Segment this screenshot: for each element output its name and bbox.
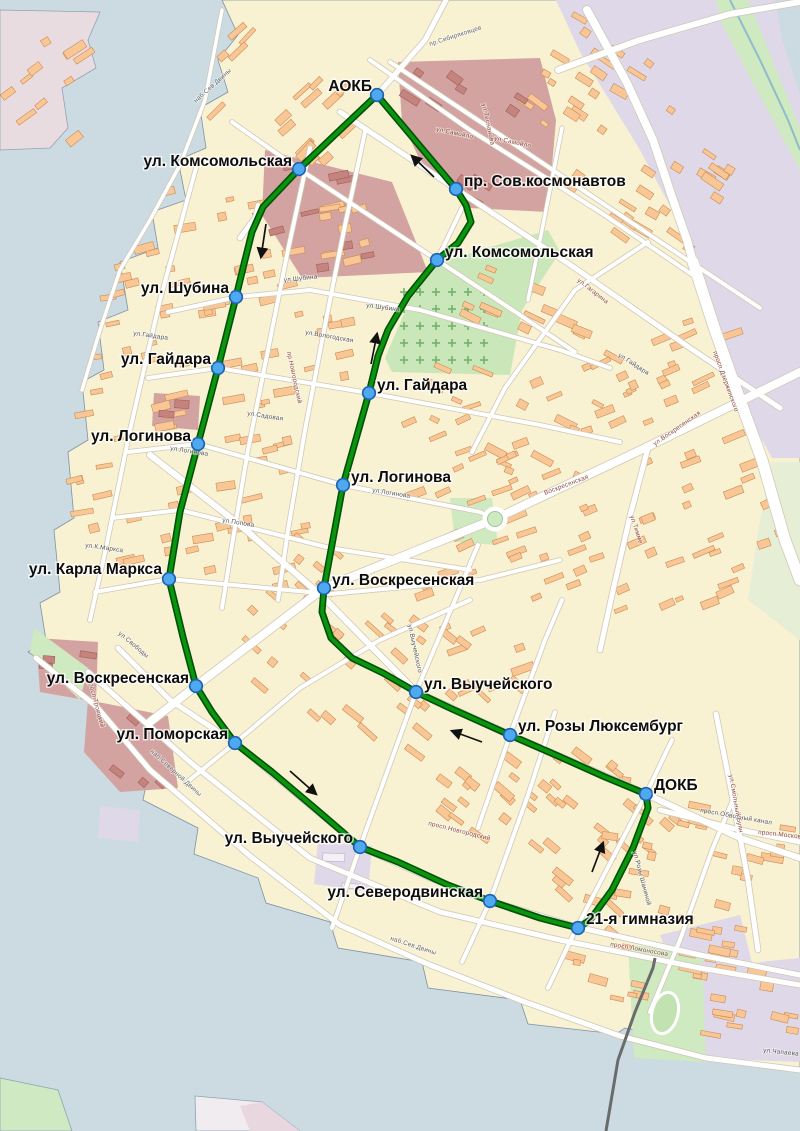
bus-stop-marker[interactable]	[450, 183, 463, 196]
bus-stop-label: ул. Воскресенская	[332, 572, 474, 589]
bus-stop-label: ул. Комсомольская	[445, 244, 594, 261]
map-canvas[interactable]: пр.Сибиряковцевул.Самойлоул.Самойлоул.Те…	[0, 0, 800, 1131]
bus-stop-marker[interactable]	[354, 841, 367, 854]
bus-stop-label: ул. Гайдара	[377, 377, 468, 394]
bus-stop-label: ул. Логинова	[351, 469, 451, 486]
roundabout	[483, 507, 508, 532]
bus-stop-marker[interactable]	[484, 895, 497, 908]
bus-stop-label: ул. Поморская	[116, 726, 228, 743]
bus-stop-marker[interactable]	[318, 582, 331, 595]
city-map: пр.Сибиряковцевул.Самойлоул.Самойлоул.Те…	[0, 0, 800, 1131]
bus-stop-marker[interactable]	[337, 479, 350, 492]
bus-stop-label: 21-я гимназия	[586, 911, 694, 928]
bus-stop-marker[interactable]	[371, 89, 384, 102]
bus-stop-marker[interactable]	[192, 438, 205, 451]
bus-stop-marker[interactable]	[572, 922, 585, 935]
bus-stop-marker[interactable]	[363, 387, 376, 400]
bus-stop-label: ул. Комсомольская	[143, 153, 292, 170]
bus-stop-marker[interactable]	[431, 254, 444, 267]
bus-stop-marker[interactable]	[229, 737, 242, 750]
bus-stop-marker[interactable]	[212, 362, 225, 375]
bus-stop-label: ул. Северодвинская	[327, 884, 483, 901]
bus-stop-marker[interactable]	[163, 573, 176, 586]
bus-stop-marker[interactable]	[410, 686, 423, 699]
bus-stop-marker[interactable]	[640, 788, 653, 801]
bus-stop-marker[interactable]	[504, 729, 517, 742]
bus-stop-label: ул. Логинова	[91, 428, 191, 445]
bus-stop-marker[interactable]	[190, 680, 203, 693]
bus-stop-marker[interactable]	[230, 291, 243, 304]
bus-stop-label: ул. Воскресенская	[47, 670, 189, 687]
bus-stop-label: ДОКБ	[654, 777, 698, 794]
bus-stop-label: пр. Сов.космонавтов	[464, 173, 626, 190]
bus-stop-label: ул. Гайдара	[121, 351, 212, 368]
bus-stop-label: ул. Розы Люксембург	[518, 718, 684, 735]
bus-stop-label: ул. Выучейского	[225, 830, 353, 847]
bus-stop-label: АОКБ	[328, 78, 372, 95]
bus-stop-label: ул. Карла Маркса	[29, 561, 163, 578]
bus-stop-marker[interactable]	[293, 163, 306, 176]
bus-stop-label: ул. Выучейского	[424, 676, 552, 693]
bus-stop-label: ул. Шубина	[141, 280, 230, 297]
